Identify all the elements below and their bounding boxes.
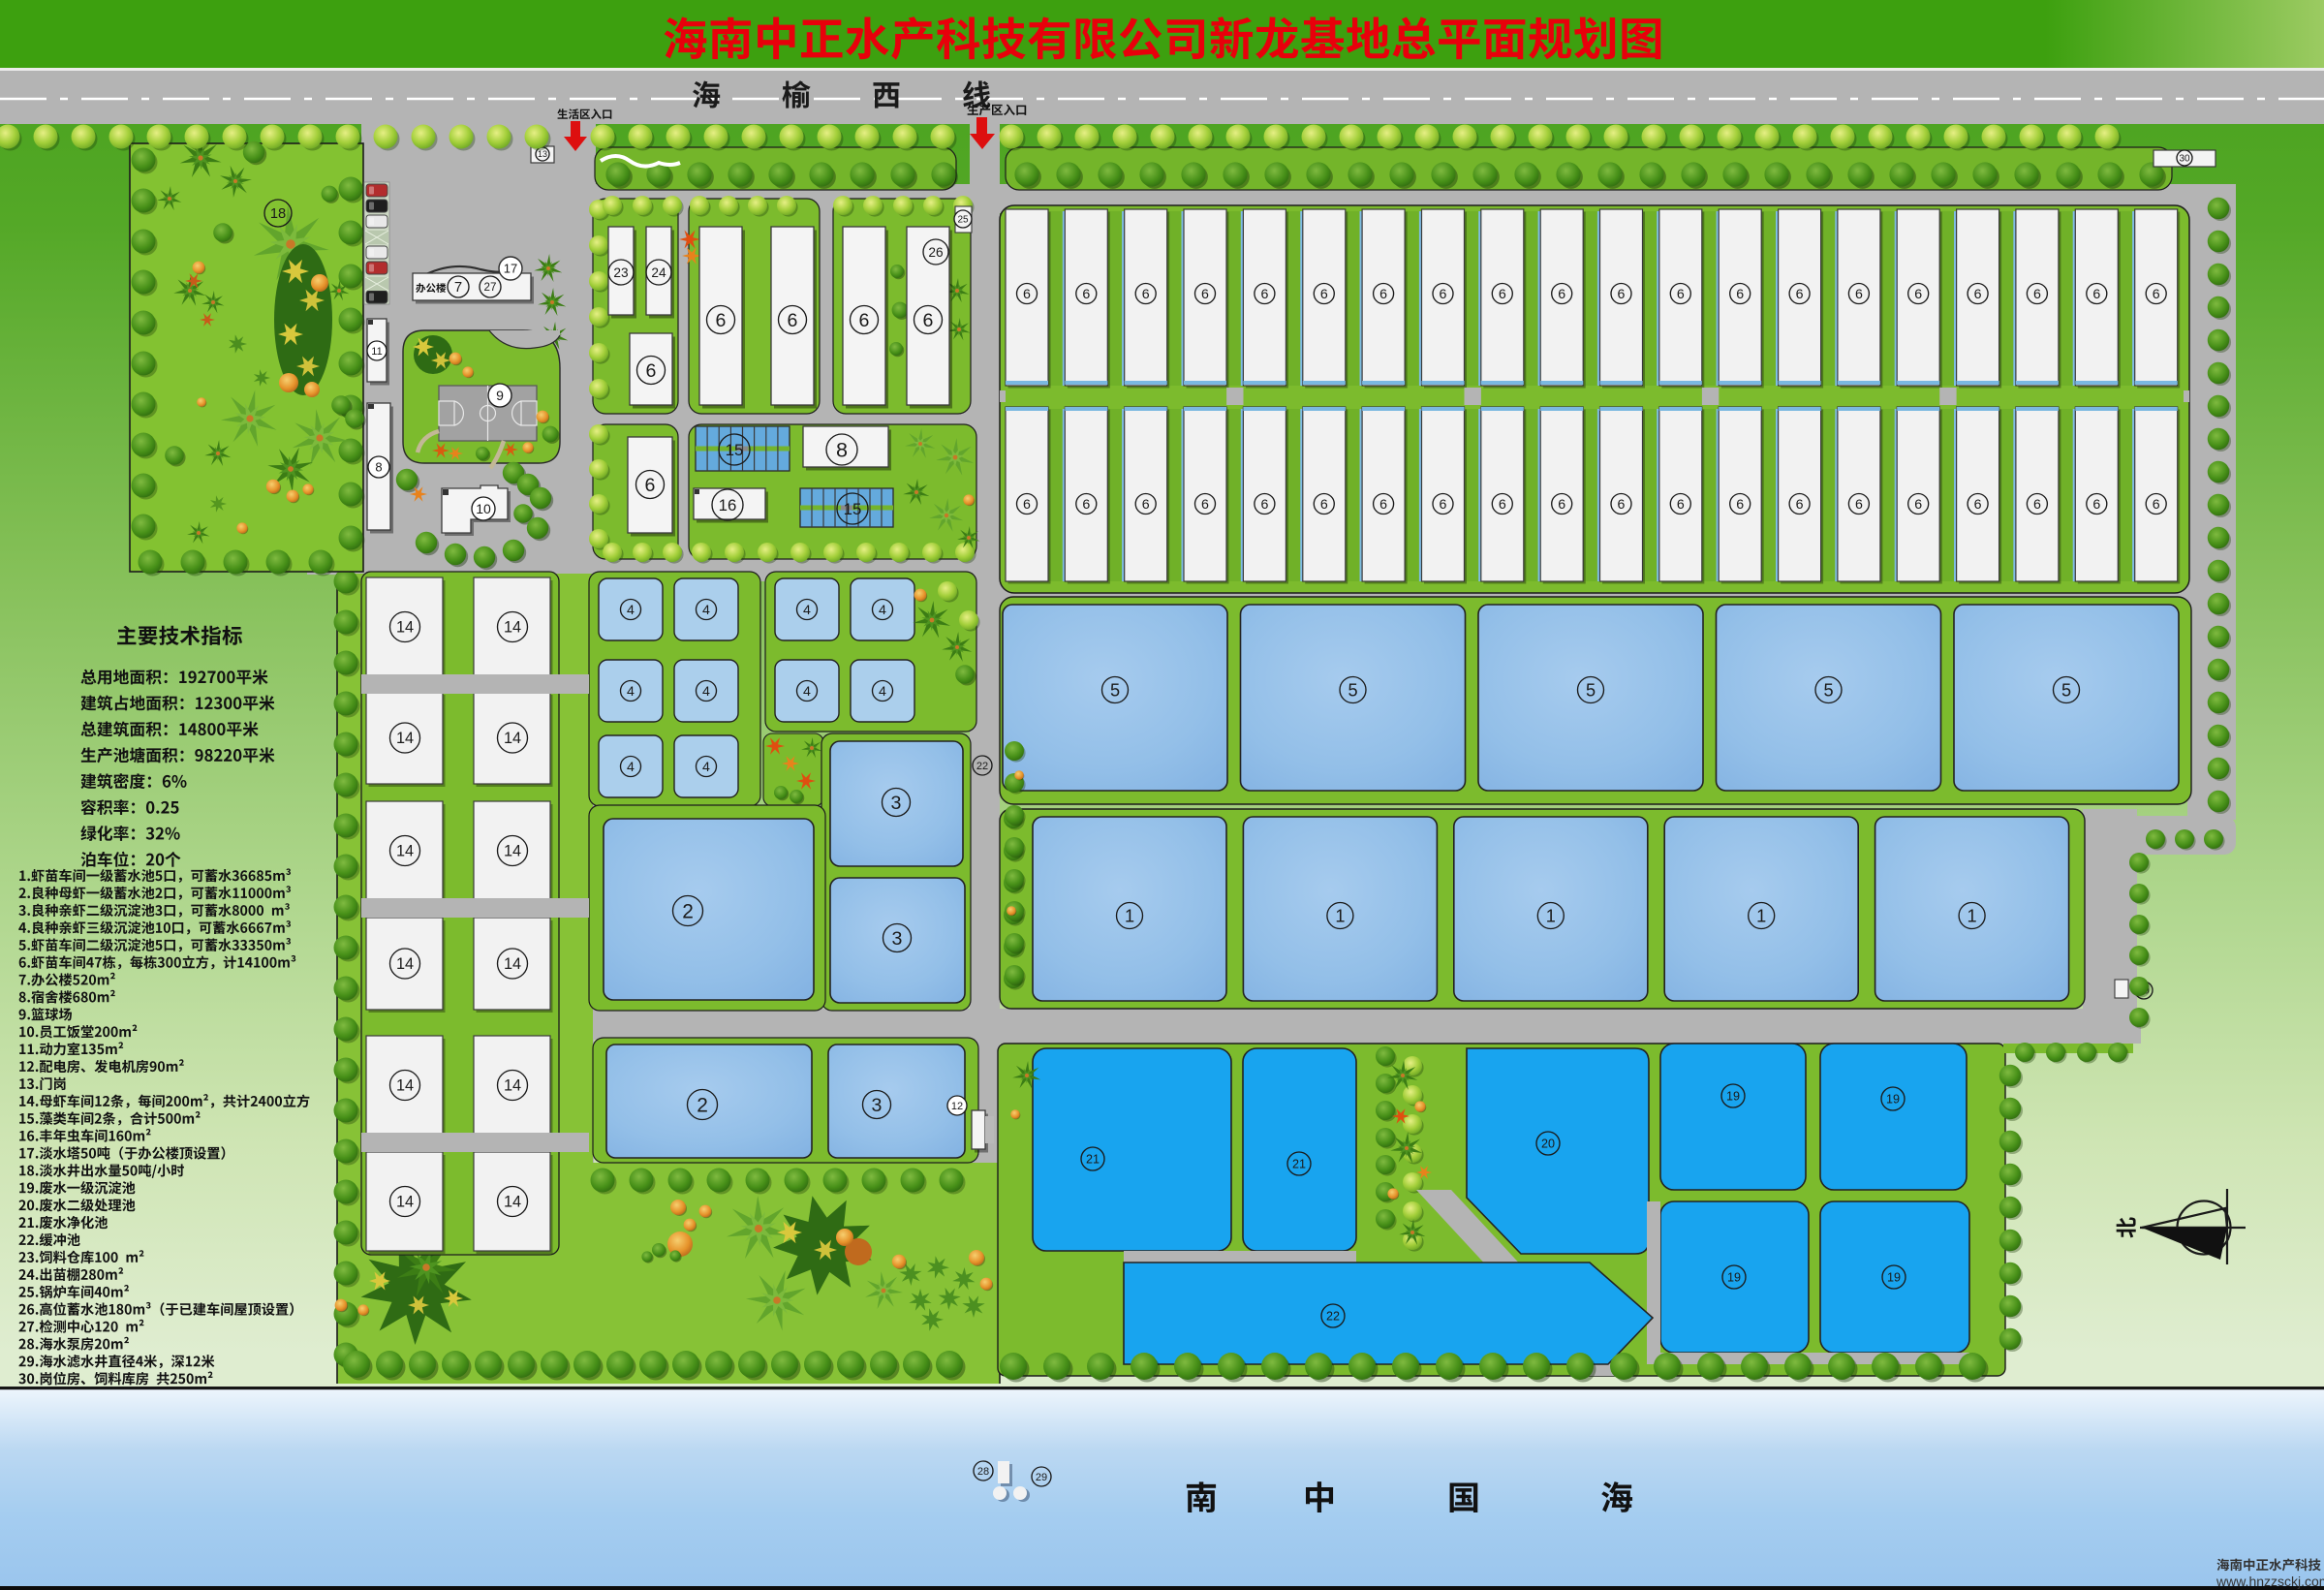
svg-text:6: 6 xyxy=(1558,497,1565,513)
svg-text:4: 4 xyxy=(803,684,811,700)
svg-text:1: 1 xyxy=(1968,906,1977,925)
svg-text:14: 14 xyxy=(504,843,521,860)
svg-text:1: 1 xyxy=(1546,906,1556,925)
svg-text:6: 6 xyxy=(1440,497,1447,513)
svg-text:6: 6 xyxy=(1677,497,1685,513)
svg-text:6: 6 xyxy=(2033,287,2041,302)
svg-text:6: 6 xyxy=(1320,287,1328,302)
svg-text:5: 5 xyxy=(1823,680,1833,700)
svg-text:6: 6 xyxy=(859,310,870,331)
svg-text:6: 6 xyxy=(1855,497,1863,513)
svg-text:14: 14 xyxy=(396,619,414,637)
svg-text:6: 6 xyxy=(1796,287,1804,302)
svg-text:15: 15 xyxy=(726,441,744,459)
svg-text:8: 8 xyxy=(375,460,382,475)
svg-text:2: 2 xyxy=(682,900,694,922)
svg-text:6: 6 xyxy=(1023,287,1031,302)
svg-text:24: 24 xyxy=(651,265,666,280)
svg-text:1: 1 xyxy=(1125,906,1134,925)
svg-text:6: 6 xyxy=(1082,287,1090,302)
svg-text:6: 6 xyxy=(1855,287,1863,302)
svg-text:7: 7 xyxy=(454,280,462,296)
svg-text:14: 14 xyxy=(504,1194,521,1211)
svg-text:6: 6 xyxy=(1082,497,1090,513)
svg-text:11: 11 xyxy=(371,346,382,358)
svg-text:25: 25 xyxy=(957,215,969,226)
svg-text:6: 6 xyxy=(1974,287,1982,302)
svg-text:6: 6 xyxy=(1440,287,1447,302)
svg-text:17: 17 xyxy=(504,262,517,276)
svg-text:3: 3 xyxy=(872,1095,883,1116)
svg-text:6: 6 xyxy=(1736,287,1744,302)
svg-text:6: 6 xyxy=(1914,497,1922,513)
svg-text:6: 6 xyxy=(2092,287,2100,302)
svg-text:6: 6 xyxy=(1260,497,1268,513)
svg-text:6: 6 xyxy=(646,360,657,382)
svg-text:10: 10 xyxy=(476,501,491,516)
svg-text:1: 1 xyxy=(1335,906,1345,925)
svg-text:4: 4 xyxy=(803,603,811,618)
svg-text:6: 6 xyxy=(1914,287,1922,302)
svg-text:6: 6 xyxy=(1023,497,1031,513)
svg-text:6: 6 xyxy=(1499,287,1506,302)
svg-text:6: 6 xyxy=(2033,497,2041,513)
svg-text:6: 6 xyxy=(1379,497,1387,513)
svg-text:6: 6 xyxy=(788,310,798,331)
svg-text:6: 6 xyxy=(1320,497,1328,513)
svg-text:26: 26 xyxy=(928,245,944,260)
svg-text:9: 9 xyxy=(496,388,504,403)
svg-text:4: 4 xyxy=(702,603,710,618)
svg-text:3: 3 xyxy=(891,793,902,814)
svg-text:12: 12 xyxy=(951,1101,963,1112)
svg-text:6: 6 xyxy=(2153,497,2160,513)
svg-text:6: 6 xyxy=(1142,287,1150,302)
svg-text:6: 6 xyxy=(1618,497,1626,513)
svg-text:22: 22 xyxy=(976,761,988,772)
svg-text:1: 1 xyxy=(1756,906,1766,925)
svg-text:30: 30 xyxy=(2179,154,2190,165)
svg-text:6: 6 xyxy=(1201,287,1209,302)
svg-text:14: 14 xyxy=(504,955,521,973)
svg-text:28: 28 xyxy=(977,1466,989,1478)
svg-text:6: 6 xyxy=(1142,497,1150,513)
svg-text:14: 14 xyxy=(396,730,414,747)
svg-text:15: 15 xyxy=(844,500,862,518)
svg-text:6: 6 xyxy=(1201,497,1209,513)
svg-text:4: 4 xyxy=(702,684,710,700)
svg-text:14: 14 xyxy=(396,955,414,973)
svg-text:8: 8 xyxy=(836,438,848,462)
svg-text:5: 5 xyxy=(1586,680,1596,700)
svg-text:2: 2 xyxy=(697,1094,708,1116)
svg-text:22: 22 xyxy=(1326,1309,1340,1323)
svg-text:5: 5 xyxy=(1110,680,1120,700)
svg-text:6: 6 xyxy=(2153,287,2160,302)
svg-text:6: 6 xyxy=(2092,497,2100,513)
svg-text:3: 3 xyxy=(892,928,903,950)
svg-text:14: 14 xyxy=(504,1077,521,1095)
svg-text:www.hnzzsckj.com: www.hnzzsckj.com xyxy=(2216,1574,2324,1589)
svg-text:19: 19 xyxy=(1727,1270,1741,1284)
svg-text:23: 23 xyxy=(613,265,629,280)
svg-text:6: 6 xyxy=(1974,497,1982,513)
svg-text:6: 6 xyxy=(1796,497,1804,513)
svg-text:4: 4 xyxy=(627,603,635,618)
svg-text:5: 5 xyxy=(1348,680,1357,700)
svg-text:14: 14 xyxy=(396,1194,414,1211)
svg-text:14: 14 xyxy=(396,843,414,860)
svg-text:18: 18 xyxy=(270,206,286,222)
svg-text:13: 13 xyxy=(538,149,547,159)
svg-text:6: 6 xyxy=(1677,287,1685,302)
svg-text:14: 14 xyxy=(504,619,521,637)
svg-text:4: 4 xyxy=(879,684,886,700)
svg-text:19: 19 xyxy=(1886,1092,1900,1106)
svg-text:5: 5 xyxy=(2061,680,2071,700)
svg-text:4: 4 xyxy=(702,760,710,775)
svg-text:4: 4 xyxy=(627,760,635,775)
svg-text:6: 6 xyxy=(923,310,934,331)
svg-text:4: 4 xyxy=(627,684,635,700)
svg-text:19: 19 xyxy=(1887,1270,1901,1284)
svg-text:21: 21 xyxy=(1292,1157,1306,1170)
svg-text:6: 6 xyxy=(1260,287,1268,302)
svg-text:6: 6 xyxy=(645,475,656,496)
svg-text:20: 20 xyxy=(1541,1137,1555,1150)
svg-text:6: 6 xyxy=(1558,287,1565,302)
svg-text:14: 14 xyxy=(504,730,521,747)
svg-text:14: 14 xyxy=(396,1077,414,1095)
svg-text:27: 27 xyxy=(484,281,497,294)
svg-text:16: 16 xyxy=(719,496,737,514)
svg-text:21: 21 xyxy=(1086,1152,1100,1166)
svg-text:6: 6 xyxy=(1618,287,1626,302)
svg-text:6: 6 xyxy=(1379,287,1387,302)
svg-text:19: 19 xyxy=(1726,1089,1740,1103)
svg-text:6: 6 xyxy=(1499,497,1506,513)
svg-text:4: 4 xyxy=(879,603,886,618)
svg-text:6: 6 xyxy=(716,310,727,331)
svg-text:29: 29 xyxy=(1036,1472,1047,1483)
svg-text:6: 6 xyxy=(1736,497,1744,513)
